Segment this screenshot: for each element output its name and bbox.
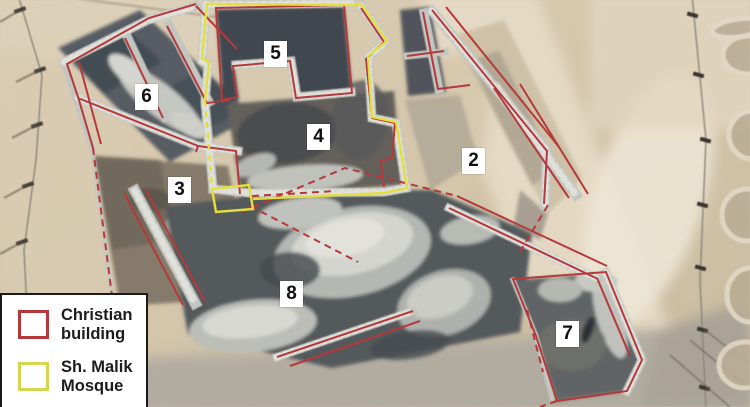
area-label-6: 6: [135, 84, 158, 110]
legend-label: Sh. Malik Mosque: [61, 358, 146, 397]
area-label-8: 8: [280, 281, 303, 307]
legend: Christian building Sh. Malik Mosque: [0, 293, 148, 407]
legend-label: Christian building: [61, 306, 146, 345]
area-label-4: 4: [307, 124, 330, 150]
christian-building-swatch-icon: [18, 310, 49, 339]
legend-item-christian-building: Christian building: [18, 306, 146, 345]
mosque-outline: [202, 4, 407, 212]
area-label-2: 2: [462, 148, 485, 174]
area-label-7: 7: [556, 321, 579, 347]
legend-item-sh-malik-mosque: Sh. Malik Mosque: [18, 358, 146, 397]
mosque-swatch-icon: [18, 362, 49, 391]
area-label-3: 3: [168, 177, 191, 203]
figure: 2 3 4 5 6 7 8 Christian building Sh. Mal…: [0, 0, 750, 407]
area-label-5: 5: [264, 41, 287, 67]
